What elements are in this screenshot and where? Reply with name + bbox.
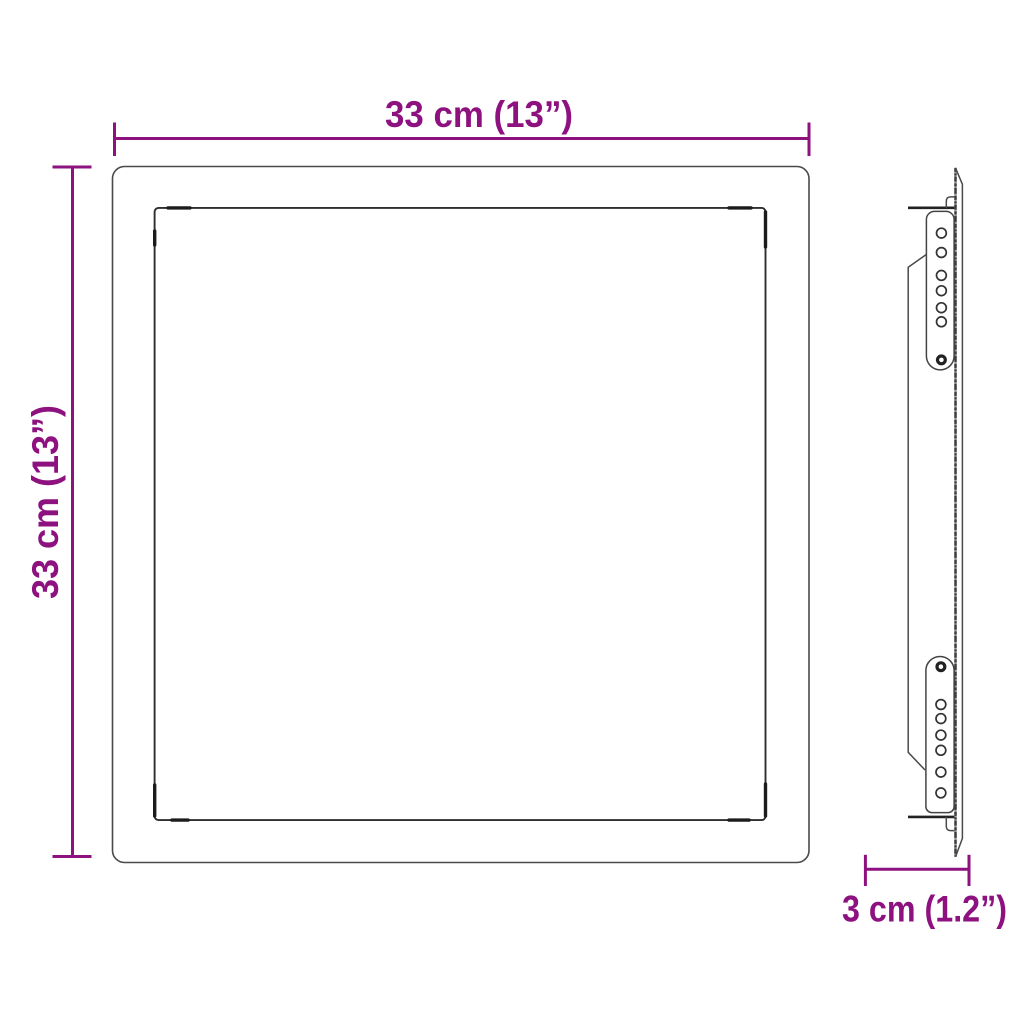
svg-text:3 cm (1.2”): 3 cm (1.2”) [842, 888, 1007, 930]
svg-text:33 cm (13”): 33 cm (13”) [24, 405, 66, 599]
svg-text:33 cm (13”): 33 cm (13”) [385, 93, 573, 135]
